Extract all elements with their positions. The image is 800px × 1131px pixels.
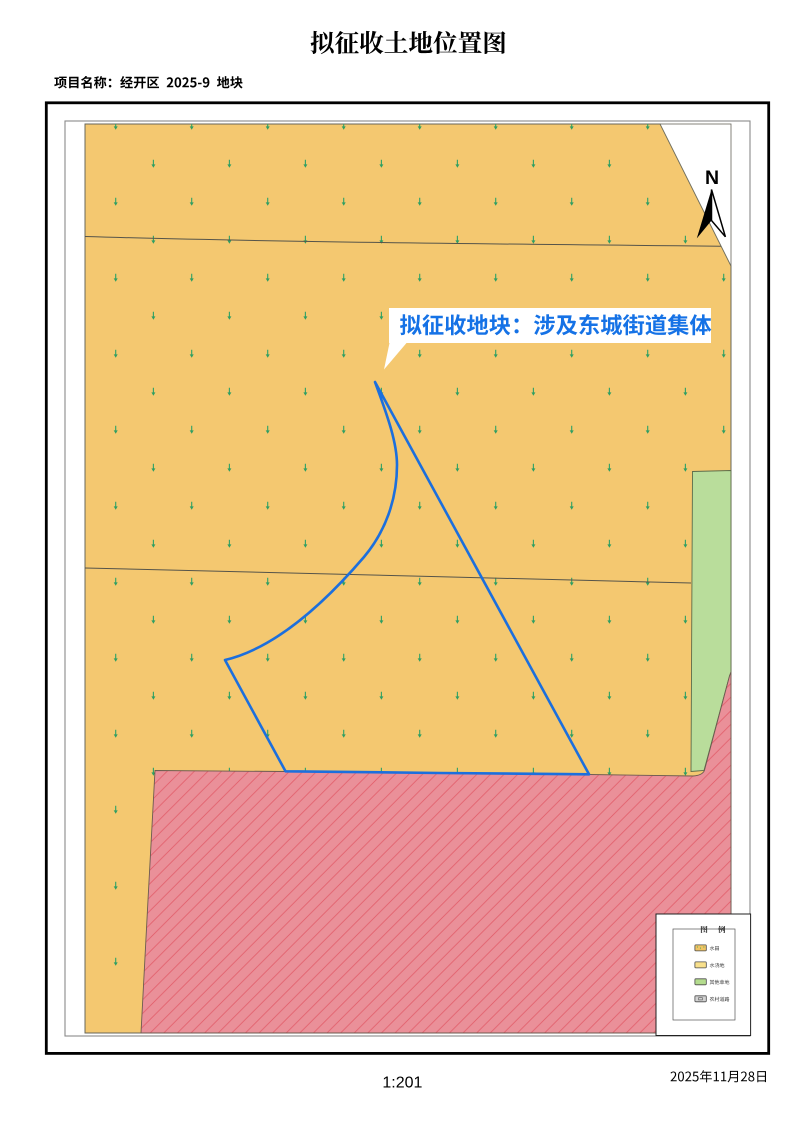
svg-text:1:201: 1:201 bbox=[382, 1074, 422, 1091]
svg-text:N: N bbox=[705, 167, 719, 189]
